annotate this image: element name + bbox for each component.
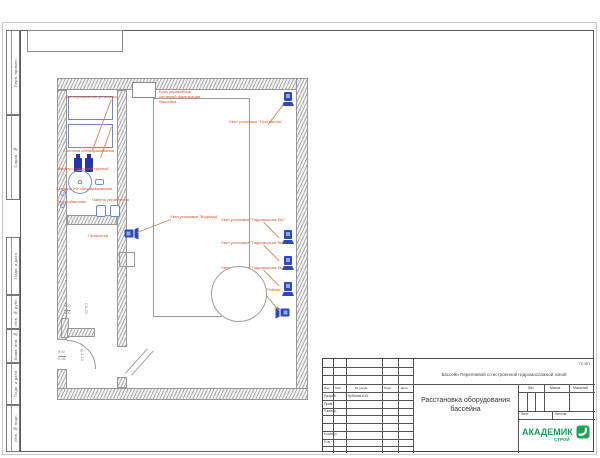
margin-box-vzam-inv: Взам. инв. № <box>6 329 20 363</box>
top-designation-box <box>27 30 123 52</box>
wall-bottom <box>57 388 308 400</box>
drawing-sheet: Перв. примен. Справ. № Подп. и дата Инв.… <box>0 0 600 458</box>
label-hydromassage-2: Узел установки "Гидромассаж №2" <box>221 241 286 246</box>
sand-filter-valve <box>78 180 82 184</box>
margin-box-label: Подп. и дата <box>13 253 18 279</box>
label-disinfection: Система обеззараживания <box>64 149 114 154</box>
wall-partition-upper <box>117 90 127 347</box>
pool-edge-bottom <box>153 316 222 317</box>
filtration-unit-2 <box>68 124 113 148</box>
pool-edge-left <box>153 98 154 317</box>
akademik-stroy-logo: АКАДЕМИК СТРОЙ <box>520 421 593 451</box>
dim-900: 900 <box>58 350 65 354</box>
sheet-title: Расстановка оборудования бассейна <box>415 387 516 423</box>
margin-box-sprav-no: Справ. № <box>6 115 20 200</box>
underwater-light-niche <box>119 252 135 267</box>
margin-box-label: Подп. и дата <box>13 371 18 397</box>
label-heat-exchanger: Теплообменник <box>57 200 86 205</box>
dim-400-b: 400 <box>64 310 71 315</box>
lit-label: Лит. <box>528 386 534 390</box>
col-list: Лист <box>335 386 342 390</box>
project-name: Бассейн Переляевой со встроенной гидрома… <box>415 367 593 381</box>
title-block: ТХ.ВП Бассейн Переляевой со встроенной г… <box>322 358 594 452</box>
label-filter-pump: Фильтр с насосной группой <box>58 167 109 172</box>
label-counterflow: Узел установки "Противоток" <box>229 120 282 125</box>
logo-text-akademik: АКАДЕМИК <box>522 427 573 437</box>
margin-box-podp-data-2: Подп. и дата <box>6 363 20 405</box>
listov-label: Листов <box>555 412 566 416</box>
margin-box-label: Перв. примен. <box>13 58 18 87</box>
hydromassage-zone-circle <box>211 266 267 322</box>
massa-label: Масса <box>550 386 560 390</box>
masshtab-label: Масштаб <box>573 386 588 390</box>
row-nkontr: Н.контр. <box>324 432 337 436</box>
counterflow-unit <box>282 92 294 107</box>
logo-text-stroy: СТРОЙ <box>554 437 570 442</box>
margin-box-label: Инв. № дубл. <box>13 298 18 326</box>
margin-box-label: Инв. № подл. <box>13 414 18 442</box>
dim-sk03: СК-03 <box>84 303 89 314</box>
control-unit-niche <box>132 82 156 98</box>
control-panel-unit <box>96 205 106 217</box>
col-data: Дата <box>401 386 408 390</box>
col-ndok: № докум. <box>355 386 368 390</box>
filter-pump <box>95 179 104 185</box>
wall-stub-horizontal <box>67 328 95 337</box>
wall-interior-horizontal <box>67 215 117 225</box>
row-razrab: Разраб. <box>324 394 337 398</box>
document-code: ТХ.ВП <box>578 361 590 366</box>
row-utv: Утв. <box>324 440 331 444</box>
margin-box-perv-primen: Перв. примен. <box>6 30 20 115</box>
wall-right <box>296 78 308 400</box>
dim-206: 2,06 <box>58 356 66 361</box>
row-prov: Пров. <box>324 402 333 406</box>
label-hydromassage-1: Узел установки "Гидромассаж №1" <box>221 218 286 223</box>
waterfall-unit <box>125 228 140 240</box>
label-control-block: Блок управления системой фильтрации басс… <box>159 90 200 104</box>
label-waterfall: Узел установки "Водопад" <box>170 215 218 220</box>
dim-400-a: 400 <box>64 304 71 308</box>
row-tkontr: Т.контр. <box>324 409 337 413</box>
label-light: Прожектор <box>88 234 108 239</box>
margin-box-label: Взам. инв. № <box>13 332 18 360</box>
control-panel-unit <box>110 205 120 217</box>
row-razrab-name: Куботов А.В. <box>348 394 369 398</box>
hydromassage-unit-3 <box>282 282 294 297</box>
margin-box-inv-dubl: Инв. № дубл. <box>6 295 20 329</box>
wall-partition-lower <box>117 377 127 388</box>
col-podp: Подп. <box>384 386 392 390</box>
list-label: Лист <box>521 412 529 416</box>
col-izm: Изм. <box>324 386 330 390</box>
label-uv-station: Станция УФ обеззараживания <box>56 187 112 192</box>
label-filtration-unit: Фильтровальная установка <box>66 95 117 100</box>
margin-box-podp-data-1: Подп. и дата <box>6 237 20 295</box>
margin-box-inv-podl: Инв. № подл. <box>6 405 20 452</box>
margin-box-label: Справ. № <box>13 147 18 167</box>
akademik-logo-icon <box>576 425 590 444</box>
label-control-panel: Панель управления <box>92 198 129 203</box>
